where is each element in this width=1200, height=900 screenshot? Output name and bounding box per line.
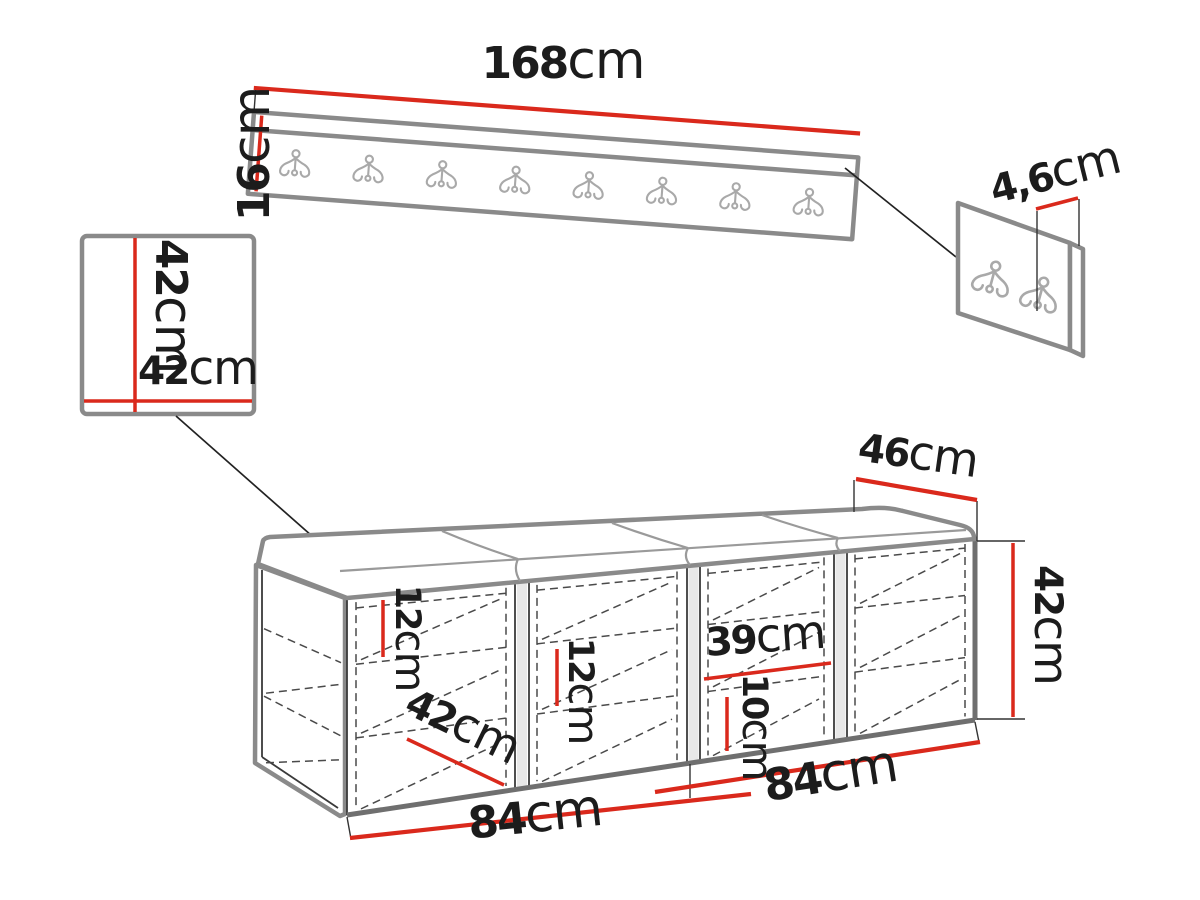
svg-text:12cm: 12cm (386, 585, 435, 692)
furniture-dimension-diagram: 168cm 16cm 42cm 42cm 4,6cm (0, 0, 1200, 900)
svg-text:16cm: 16cm (222, 87, 282, 221)
detail-panel-side (1070, 243, 1083, 356)
svg-text:42cm: 42cm (1023, 565, 1078, 685)
dimension-hanger-width: 168cm (481, 31, 644, 91)
dimension-hanger-height: 16cm (222, 87, 282, 221)
svg-text:168cm: 168cm (481, 31, 644, 91)
svg-text:42cm: 42cm (138, 341, 258, 396)
svg-text:12cm: 12cm (559, 638, 608, 745)
diagram-canvas: 168cm 16cm 42cm 42cm 4,6cm (0, 0, 1200, 900)
dimension-shelf-gap-middle: 12cm (559, 638, 608, 745)
dimension-shelf-gap-left: 12cm (386, 585, 435, 692)
dimension-square-width: 42cm (138, 341, 258, 396)
dimension-bench-height: 42cm (1023, 565, 1078, 685)
background (0, 0, 1200, 900)
